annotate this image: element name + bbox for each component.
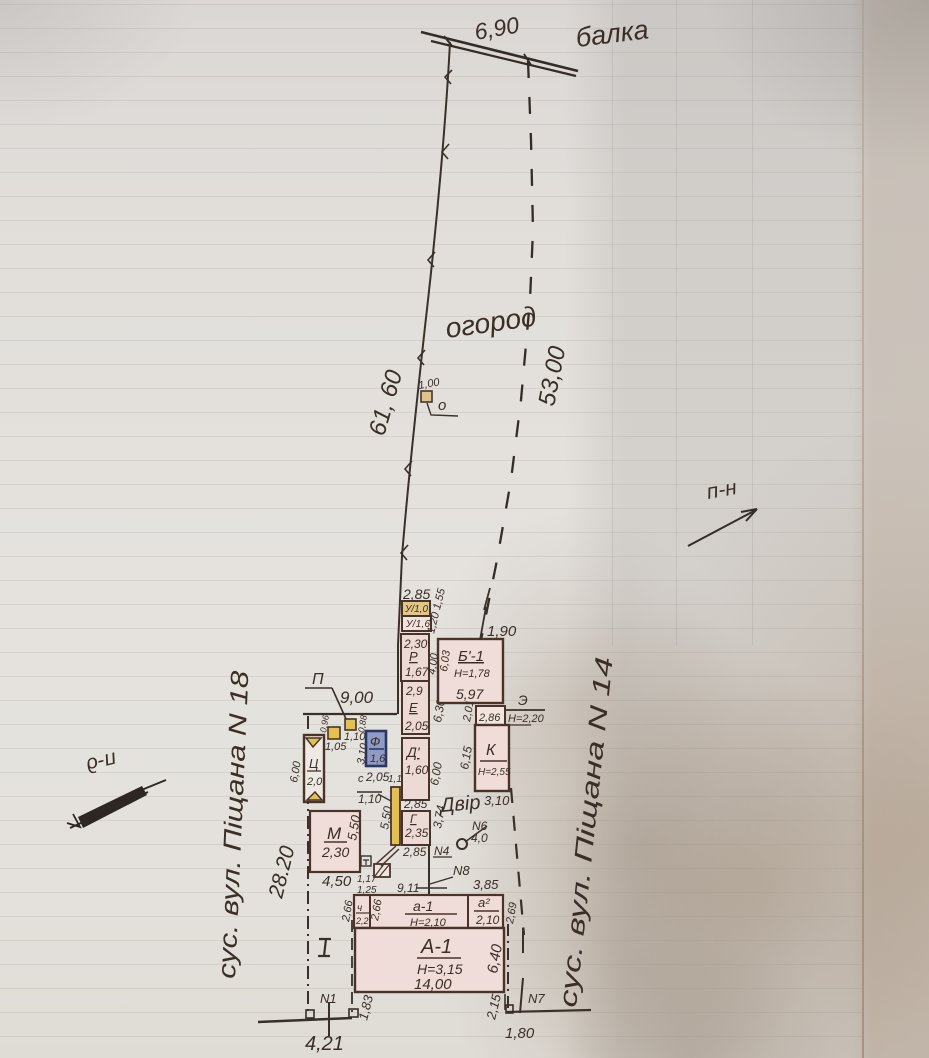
svg-text:балка: балка [574,14,650,53]
svg-text:Двір: Двір [438,792,482,818]
svg-text:Д': Д' [405,744,421,760]
svg-text:о: о [438,397,446,414]
svg-text:с: с [358,773,364,785]
svg-text:М: М [327,824,342,843]
svg-text:2,85: 2,85 [403,797,428,811]
svg-text:а²: а² [478,895,490,910]
svg-text:2,01: 2,01 [461,699,477,723]
svg-text:П: П [312,671,324,688]
svg-text:9,11: 9,11 [397,881,419,895]
svg-text:4,0: 4,0 [471,831,488,845]
svg-text:2,05: 2,05 [365,770,390,784]
svg-text:1,1: 1,1 [388,774,402,785]
svg-text:9,00: 9,00 [340,688,374,707]
svg-text:28.20: 28.20 [264,843,299,901]
svg-text:а-1: а-1 [413,898,433,914]
svg-text:Э: Э [518,692,528,708]
svg-text:2,86: 2,86 [478,712,501,724]
svg-text:1,6: 1,6 [370,753,386,765]
svg-text:4,21: 4,21 [305,1033,344,1055]
svg-text:сус. вул. Піщана N 18: сус. вул. Піщана N 18 [213,670,254,979]
svg-text:2,2: 2,2 [355,916,369,926]
svg-text:1,10: 1,10 [344,731,366,743]
svg-text:3,10: 3,10 [484,793,510,808]
svg-text:Н=2,20: Н=2,20 [508,713,545,725]
svg-text:2,30: 2,30 [321,844,349,860]
svg-text:2,9: 2,9 [405,684,423,698]
svg-text:5,97: 5,97 [456,686,484,702]
svg-text:53,00: 53,00 [533,343,571,408]
svg-text:2,05: 2,05 [404,719,429,733]
svg-text:Ц: Ц [309,756,319,771]
svg-text:14,00: 14,00 [414,976,452,993]
svg-text:2,35: 2,35 [404,826,429,840]
svg-text:6,00: 6,00 [288,759,304,783]
svg-text:Ф: Ф [370,734,380,749]
svg-text:Н=1,78: Н=1,78 [454,668,491,680]
svg-text:4,50: 4,50 [322,873,352,890]
svg-text:Р: Р [409,649,418,664]
svg-text:1,60: 1,60 [405,763,429,777]
svg-text:ч: ч [357,903,362,914]
svg-text:N8: N8 [453,863,470,878]
svg-text:Н=2,55: Н=2,55 [478,767,511,778]
svg-text:А-1: А-1 [420,936,452,958]
svg-text:п-н: п-н [705,476,739,504]
svg-text:61, 60: 61, 60 [364,366,409,438]
svg-text:п-д: п-д [84,747,119,777]
svg-text:6,15: 6,15 [457,745,475,771]
svg-text:1,00: 1,00 [417,376,441,392]
svg-text:У/1,0: У/1,0 [404,604,428,615]
svg-text:К: К [486,742,497,759]
svg-text:огород: огород [444,301,539,344]
svg-text:1,90: 1,90 [487,623,517,640]
svg-text:3,85: 3,85 [473,877,499,892]
svg-text:2,85: 2,85 [402,586,430,602]
svg-text:1,10: 1,10 [358,792,382,806]
svg-text:Б'-1: Б'-1 [458,648,484,665]
svg-text:6,90: 6,90 [472,12,521,45]
svg-text:2,0: 2,0 [306,776,323,788]
svg-text:1,80: 1,80 [505,1025,535,1042]
svg-text:N4: N4 [434,844,450,858]
svg-text:2,15: 2,15 [483,992,504,1022]
svg-text:6,00: 6,00 [427,761,445,787]
svg-text:N7: N7 [528,991,545,1006]
svg-text:2,10: 2,10 [475,913,500,927]
svg-text:Н=3,15: Н=3,15 [417,961,463,977]
svg-text:Е: Е [409,700,418,715]
svg-text:2,69: 2,69 [504,901,520,925]
svg-text:2,85: 2,85 [402,845,427,859]
svg-text:сус. вул. Піщана N 14: сус. вул. Піщана N 14 [554,656,619,1009]
